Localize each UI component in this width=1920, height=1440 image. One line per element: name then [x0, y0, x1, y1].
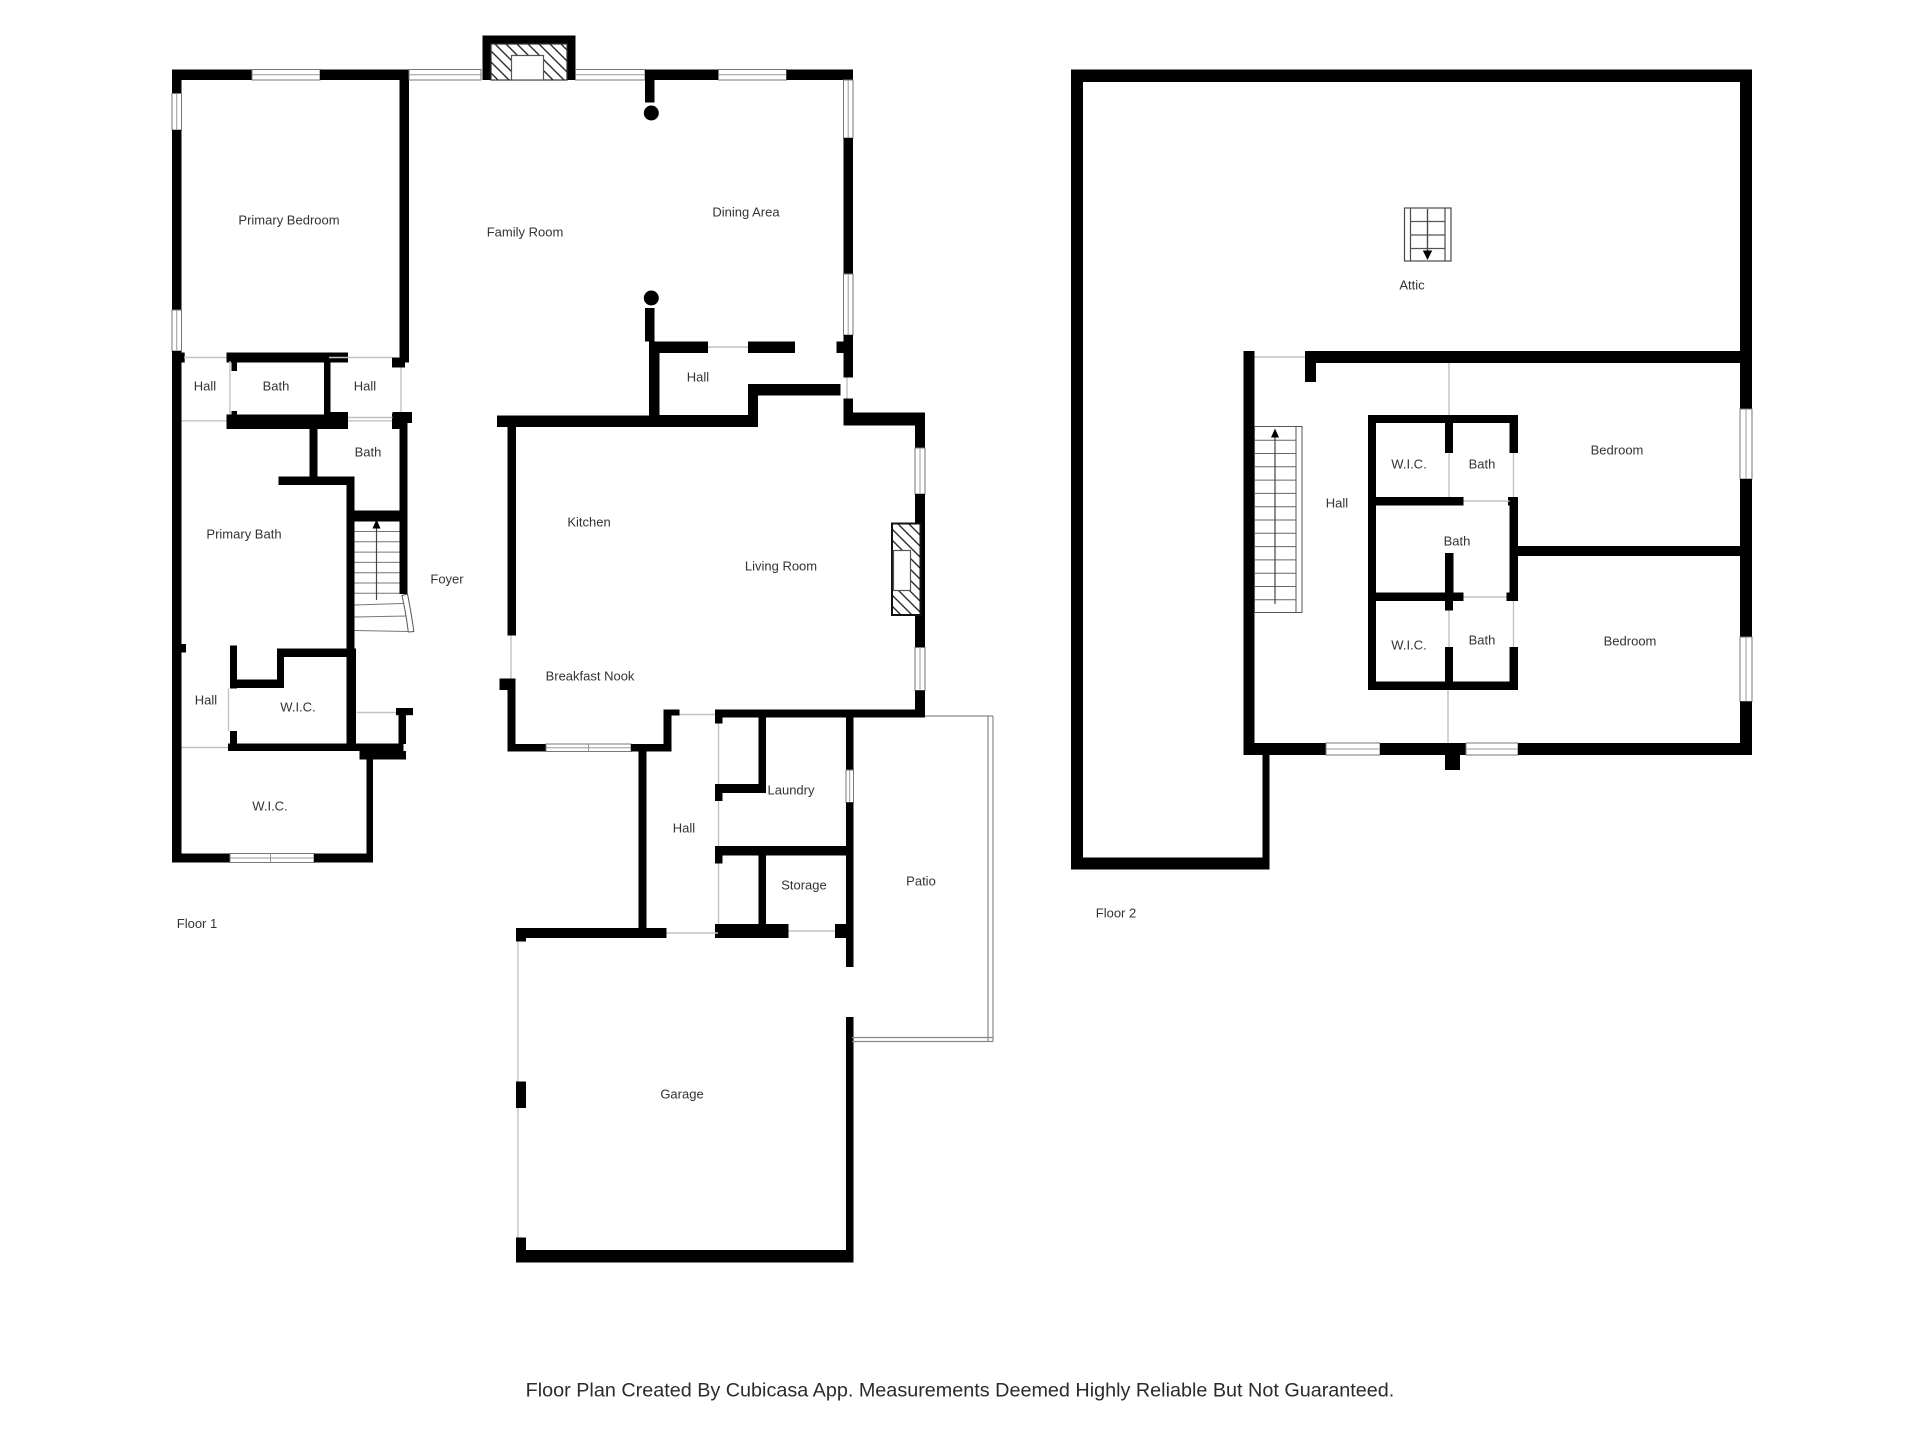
svg-text:Hall: Hall — [354, 379, 377, 394]
svg-text:Patio: Patio — [906, 874, 936, 889]
svg-text:Bath: Bath — [1469, 457, 1496, 472]
svg-text:Primary Bedroom: Primary Bedroom — [238, 213, 339, 228]
svg-text:Kitchen: Kitchen — [567, 515, 610, 530]
svg-text:Floor 2: Floor 2 — [1096, 906, 1136, 921]
svg-text:Foyer: Foyer — [430, 572, 464, 587]
svg-text:Dining Area: Dining Area — [712, 205, 780, 220]
svg-text:Hall: Hall — [1326, 496, 1349, 511]
svg-text:Family Room: Family Room — [487, 225, 564, 240]
svg-text:Bath: Bath — [263, 379, 290, 394]
svg-text:Hall: Hall — [673, 821, 696, 836]
svg-text:W.I.C.: W.I.C. — [1391, 457, 1426, 472]
svg-text:Garage: Garage — [660, 1087, 703, 1102]
svg-text:Bath: Bath — [1444, 534, 1471, 549]
svg-text:Storage: Storage — [781, 878, 827, 893]
svg-text:Breakfast Nook: Breakfast Nook — [546, 669, 635, 684]
svg-text:W.I.C.: W.I.C. — [252, 799, 287, 814]
svg-text:W.I.C.: W.I.C. — [280, 700, 315, 715]
svg-text:Bath: Bath — [355, 445, 382, 460]
svg-text:W.I.C.: W.I.C. — [1391, 638, 1426, 653]
svg-text:Hall: Hall — [687, 370, 710, 385]
svg-text:Bedroom: Bedroom — [1604, 634, 1657, 649]
svg-text:Living Room: Living Room — [745, 559, 817, 574]
svg-text:Laundry: Laundry — [768, 783, 815, 798]
svg-text:Bath: Bath — [1469, 633, 1496, 648]
svg-text:Hall: Hall — [195, 693, 218, 708]
svg-text:Bedroom: Bedroom — [1591, 443, 1644, 458]
svg-text:Floor 1: Floor 1 — [177, 916, 217, 931]
svg-text:Primary Bath: Primary Bath — [206, 527, 281, 542]
svg-text:Floor Plan Created By Cubicasa: Floor Plan Created By Cubicasa App. Meas… — [526, 1380, 1395, 1402]
svg-text:Hall: Hall — [194, 379, 217, 394]
svg-text:Attic: Attic — [1399, 278, 1425, 293]
